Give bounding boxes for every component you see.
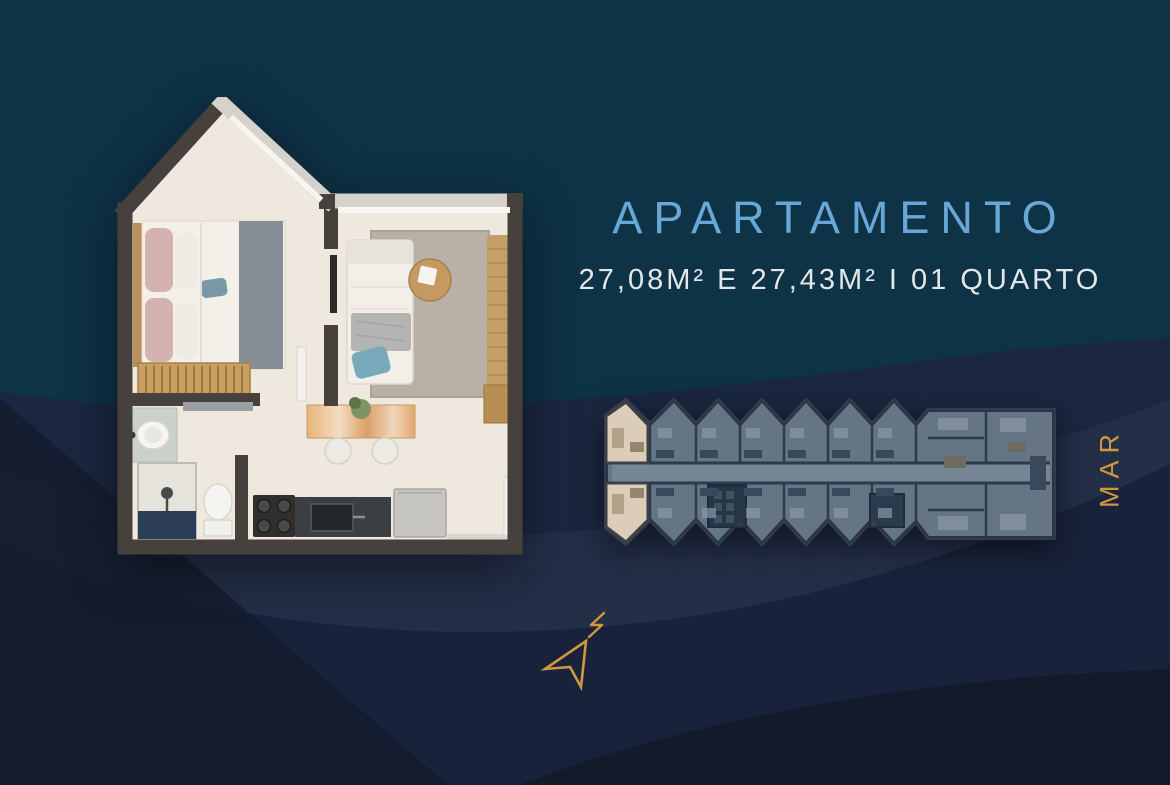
apartment-floor-plan <box>113 97 533 559</box>
presentation-slide: APARTAMENTO 27,08M² E 27,43M² I 01 QUART… <box>0 0 1170 785</box>
coffee-table <box>409 259 451 301</box>
page-subtitle: 27,08M² E 27,43M² I 01 QUARTO <box>520 264 1160 297</box>
sofa <box>347 240 413 384</box>
sea-direction-label: MAR <box>1078 398 1142 538</box>
closet-rack <box>138 363 250 397</box>
page-title: APARTAMENTO <box>545 192 1135 244</box>
building-floor-plan <box>598 398 1062 548</box>
bed <box>133 221 285 369</box>
north-arrow-icon <box>523 603 623 703</box>
tv-panel <box>330 255 337 313</box>
